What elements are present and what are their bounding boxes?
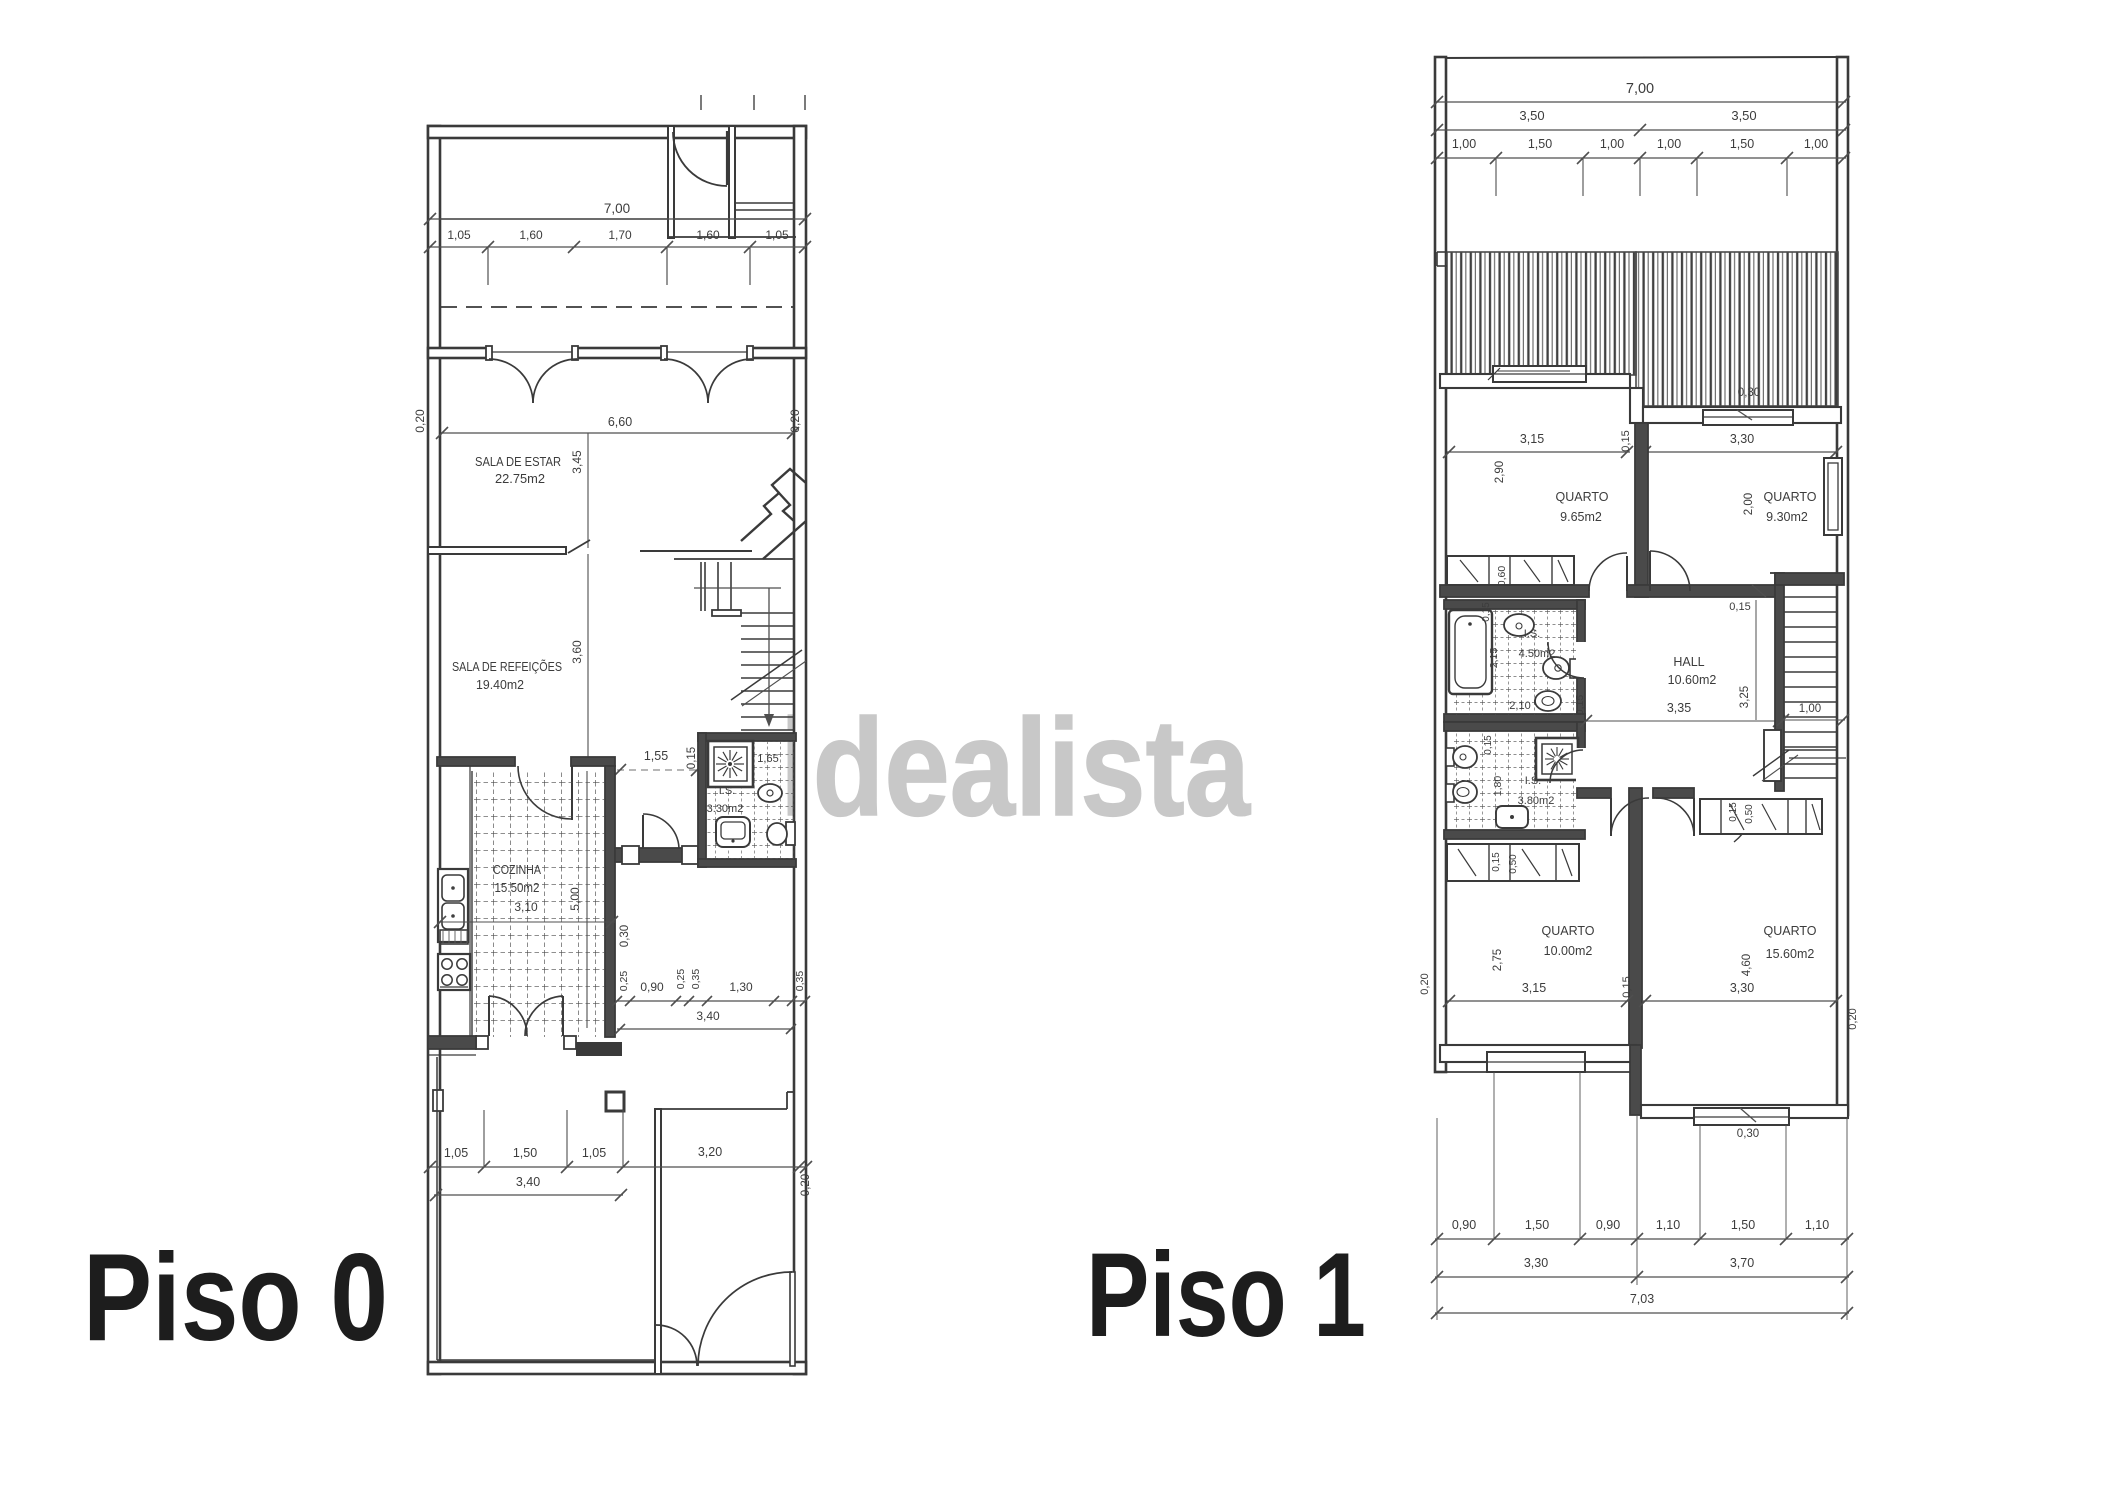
svg-text:0,35: 0,35 [794, 971, 806, 992]
svg-text:QUARTO: QUARTO [1763, 924, 1816, 938]
svg-text:0,20: 0,20 [413, 409, 427, 433]
svg-text:Piso 1: Piso 1 [1086, 1228, 1366, 1362]
svg-text:1,60: 1,60 [696, 228, 720, 242]
svg-text:I.S.: I.S. [719, 785, 736, 797]
svg-text:1,50: 1,50 [1731, 1218, 1755, 1232]
svg-text:I.S.: I.S. [1525, 775, 1542, 787]
svg-text:I.S.: I.S. [1524, 628, 1541, 640]
svg-text:0,90: 0,90 [640, 980, 664, 994]
svg-text:3,30: 3,30 [1730, 981, 1754, 995]
svg-text:0,50: 0,50 [1744, 804, 1755, 824]
svg-text:1,05: 1,05 [444, 1146, 468, 1160]
svg-text:1,50: 1,50 [1528, 137, 1552, 151]
svg-text:HALL: HALL [1673, 655, 1704, 669]
svg-text:COZINHA: COZINHA [493, 863, 542, 877]
svg-text:1,30: 1,30 [729, 980, 753, 994]
svg-text:0,25: 0,25 [618, 971, 630, 992]
svg-text:3,20: 3,20 [698, 1145, 722, 1159]
svg-text:1,00: 1,00 [1452, 137, 1476, 151]
svg-text:3,30: 3,30 [1730, 432, 1754, 446]
svg-text:3,25: 3,25 [1739, 686, 1751, 708]
svg-text:1,60: 1,60 [519, 228, 543, 242]
svg-text:3.80m2: 3.80m2 [1518, 795, 1555, 807]
svg-text:0,35: 0,35 [690, 969, 702, 990]
svg-text:1,70: 1,70 [608, 228, 632, 242]
svg-text:0,15: 0,15 [1728, 802, 1739, 822]
svg-text:SALA DE REFEIÇÕES: SALA DE REFEIÇÕES [452, 659, 562, 674]
svg-text:0,20: 0,20 [800, 1174, 812, 1196]
svg-text:10.60m2: 10.60m2 [1668, 673, 1717, 687]
svg-text:3,35: 3,35 [1667, 701, 1691, 715]
svg-text:7,03: 7,03 [1630, 1292, 1654, 1306]
svg-text:3,15: 3,15 [1520, 432, 1544, 446]
svg-text:2,75: 2,75 [1492, 949, 1504, 971]
svg-text:idealista: idealista [780, 691, 1251, 845]
svg-text:2,15: 2,15 [1488, 648, 1500, 669]
svg-text:0,20: 0,20 [788, 409, 802, 433]
svg-text:3,40: 3,40 [516, 1175, 540, 1189]
svg-text:3,40: 3,40 [696, 1009, 720, 1023]
svg-text:0,50: 0,50 [1508, 854, 1519, 874]
svg-text:1,00: 1,00 [1657, 137, 1681, 151]
svg-text:0,90: 0,90 [1596, 1218, 1620, 1232]
svg-text:3,45: 3,45 [570, 450, 584, 474]
svg-text:0,30: 0,30 [619, 925, 631, 947]
svg-text:1,10: 1,10 [1805, 1218, 1829, 1232]
svg-text:4,60: 4,60 [1741, 954, 1753, 976]
svg-text:2,10: 2,10 [1509, 700, 1530, 712]
svg-text:7,00: 7,00 [604, 201, 630, 216]
svg-text:3,50: 3,50 [1731, 108, 1756, 123]
svg-text:0,15: 0,15 [1483, 735, 1494, 755]
svg-text:0,15: 0,15 [1481, 602, 1492, 622]
svg-text:1,80: 1,80 [1492, 776, 1504, 797]
svg-text:0,15: 0,15 [1620, 430, 1632, 451]
svg-text:0,15: 0,15 [686, 747, 698, 769]
svg-text:3,60: 3,60 [570, 640, 584, 664]
svg-text:1,10: 1,10 [1656, 1218, 1680, 1232]
svg-text:15.50m2: 15.50m2 [495, 881, 540, 895]
svg-text:3,10: 3,10 [514, 900, 538, 914]
svg-text:1,05: 1,05 [582, 1146, 606, 1160]
svg-text:0,15: 0,15 [1621, 976, 1633, 997]
svg-text:1,50: 1,50 [1730, 137, 1754, 151]
svg-text:0,30: 0,30 [1737, 1128, 1759, 1140]
svg-text:0,20: 0,20 [1847, 1008, 1859, 1029]
svg-text:15.60m2: 15.60m2 [1766, 947, 1815, 961]
svg-text:22.75m2: 22.75m2 [495, 472, 545, 486]
svg-text:9.65m2: 9.65m2 [1560, 510, 1602, 524]
svg-text:10.00m2: 10.00m2 [1544, 944, 1593, 958]
svg-text:1,50: 1,50 [1525, 1218, 1549, 1232]
svg-text:QUARTO: QUARTO [1763, 490, 1816, 504]
svg-text:2,00: 2,00 [1743, 493, 1755, 515]
svg-text:SALA DE ESTAR: SALA DE ESTAR [475, 454, 561, 469]
svg-text:Piso 0: Piso 0 [83, 1229, 388, 1367]
svg-text:1,05: 1,05 [447, 228, 471, 242]
svg-text:3,15: 3,15 [1522, 981, 1546, 995]
svg-text:1,05: 1,05 [765, 228, 789, 242]
svg-text:1,00: 1,00 [1600, 137, 1624, 151]
svg-text:19.40m2: 19.40m2 [476, 678, 524, 692]
svg-text:2,90: 2,90 [1494, 461, 1506, 483]
svg-text:9.30m2: 9.30m2 [1766, 510, 1808, 524]
svg-text:3,30: 3,30 [1524, 1256, 1548, 1270]
svg-text:7,00: 7,00 [1626, 81, 1654, 97]
svg-text:3,70: 3,70 [1730, 1256, 1754, 1270]
svg-text:0,15: 0,15 [1574, 695, 1586, 716]
svg-text:QUARTO: QUARTO [1541, 924, 1594, 938]
svg-text:1,00: 1,00 [1799, 703, 1821, 715]
svg-text:0,20: 0,20 [1419, 973, 1431, 994]
svg-text:3,50: 3,50 [1519, 108, 1544, 123]
svg-text:1,55: 1,55 [644, 749, 668, 763]
svg-text:6,60: 6,60 [608, 415, 632, 429]
svg-text:1,50: 1,50 [513, 1146, 537, 1160]
svg-text:3.30m2: 3.30m2 [707, 803, 744, 815]
svg-text:QUARTO: QUARTO [1555, 490, 1608, 504]
svg-text:0,25: 0,25 [675, 969, 687, 990]
svg-text:0,30: 0,30 [1738, 387, 1760, 399]
svg-text:1,00: 1,00 [1804, 137, 1828, 151]
svg-text:0,15: 0,15 [1729, 601, 1750, 613]
svg-text:0,90: 0,90 [1452, 1218, 1476, 1232]
svg-text:0,60: 0,60 [1496, 566, 1508, 587]
svg-text:1,65: 1,65 [757, 753, 778, 765]
svg-text:5,00: 5,00 [568, 887, 582, 911]
svg-text:0,15: 0,15 [1491, 852, 1502, 872]
